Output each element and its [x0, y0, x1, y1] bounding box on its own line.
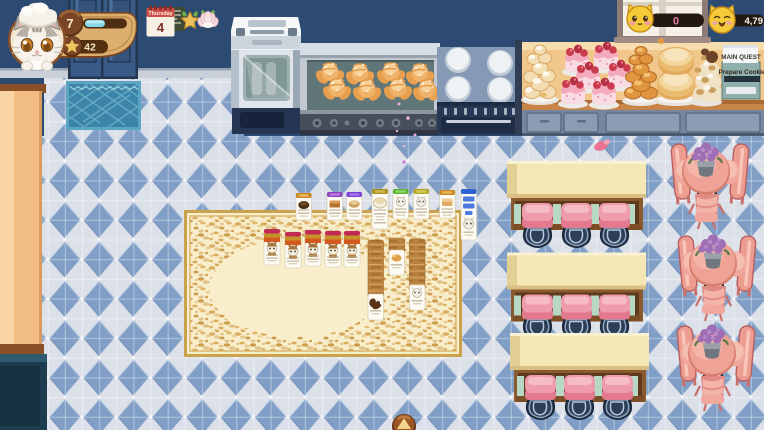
svg-text:4,79: 4,79 — [745, 16, 764, 27]
svg-text:42: 42 — [84, 42, 96, 54]
svg-text:0: 0 — [673, 16, 679, 28]
svg-text:MAIN QUEST: MAIN QUEST — [721, 54, 761, 61]
svg-text:Prepare Cookie: Prepare Cookie — [719, 69, 764, 76]
svg-text:4: 4 — [157, 20, 165, 35]
svg-text:7: 7 — [66, 16, 73, 31]
svg-text:Thursday: Thursday — [148, 11, 172, 17]
